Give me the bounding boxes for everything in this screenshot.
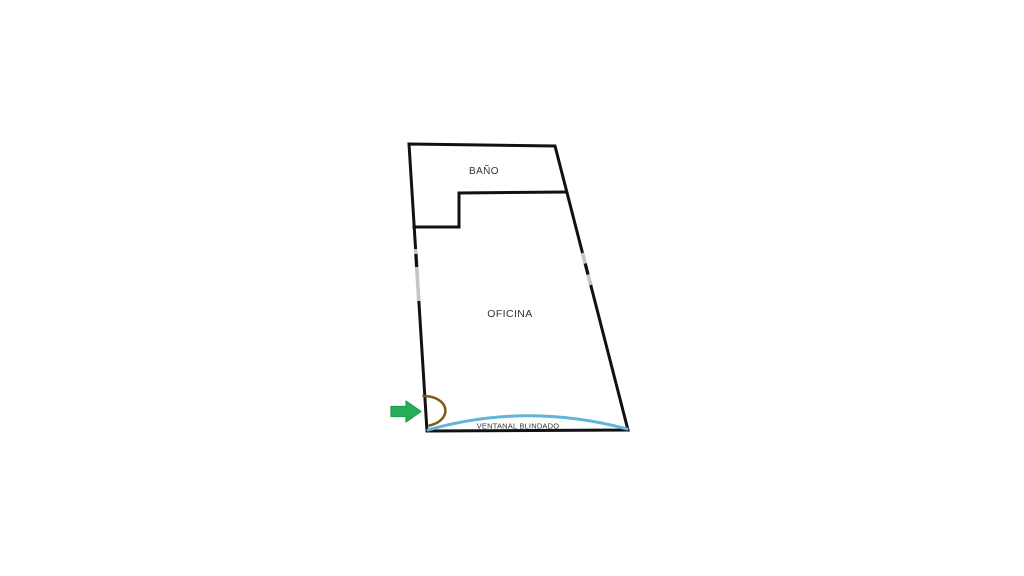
bathroom-label: BAÑO: [469, 164, 499, 177]
floorplan-drawing: BAÑO OFICINA VENTANAL BLINDADO: [0, 0, 1024, 576]
right-window-mullion: [585, 264, 588, 275]
armored-window-label: VENTANAL BLINDADO: [477, 422, 560, 431]
office-label: OFICINA: [487, 308, 532, 320]
outer-walls: [409, 144, 628, 431]
left-window-mullion: [416, 254, 417, 267]
bathroom-partition-walls: [413, 192, 568, 227]
floorplan-canvas: BAÑO OFICINA VENTANAL BLINDADO: [0, 0, 1024, 576]
entrance-arrow-icon: [391, 401, 421, 422]
